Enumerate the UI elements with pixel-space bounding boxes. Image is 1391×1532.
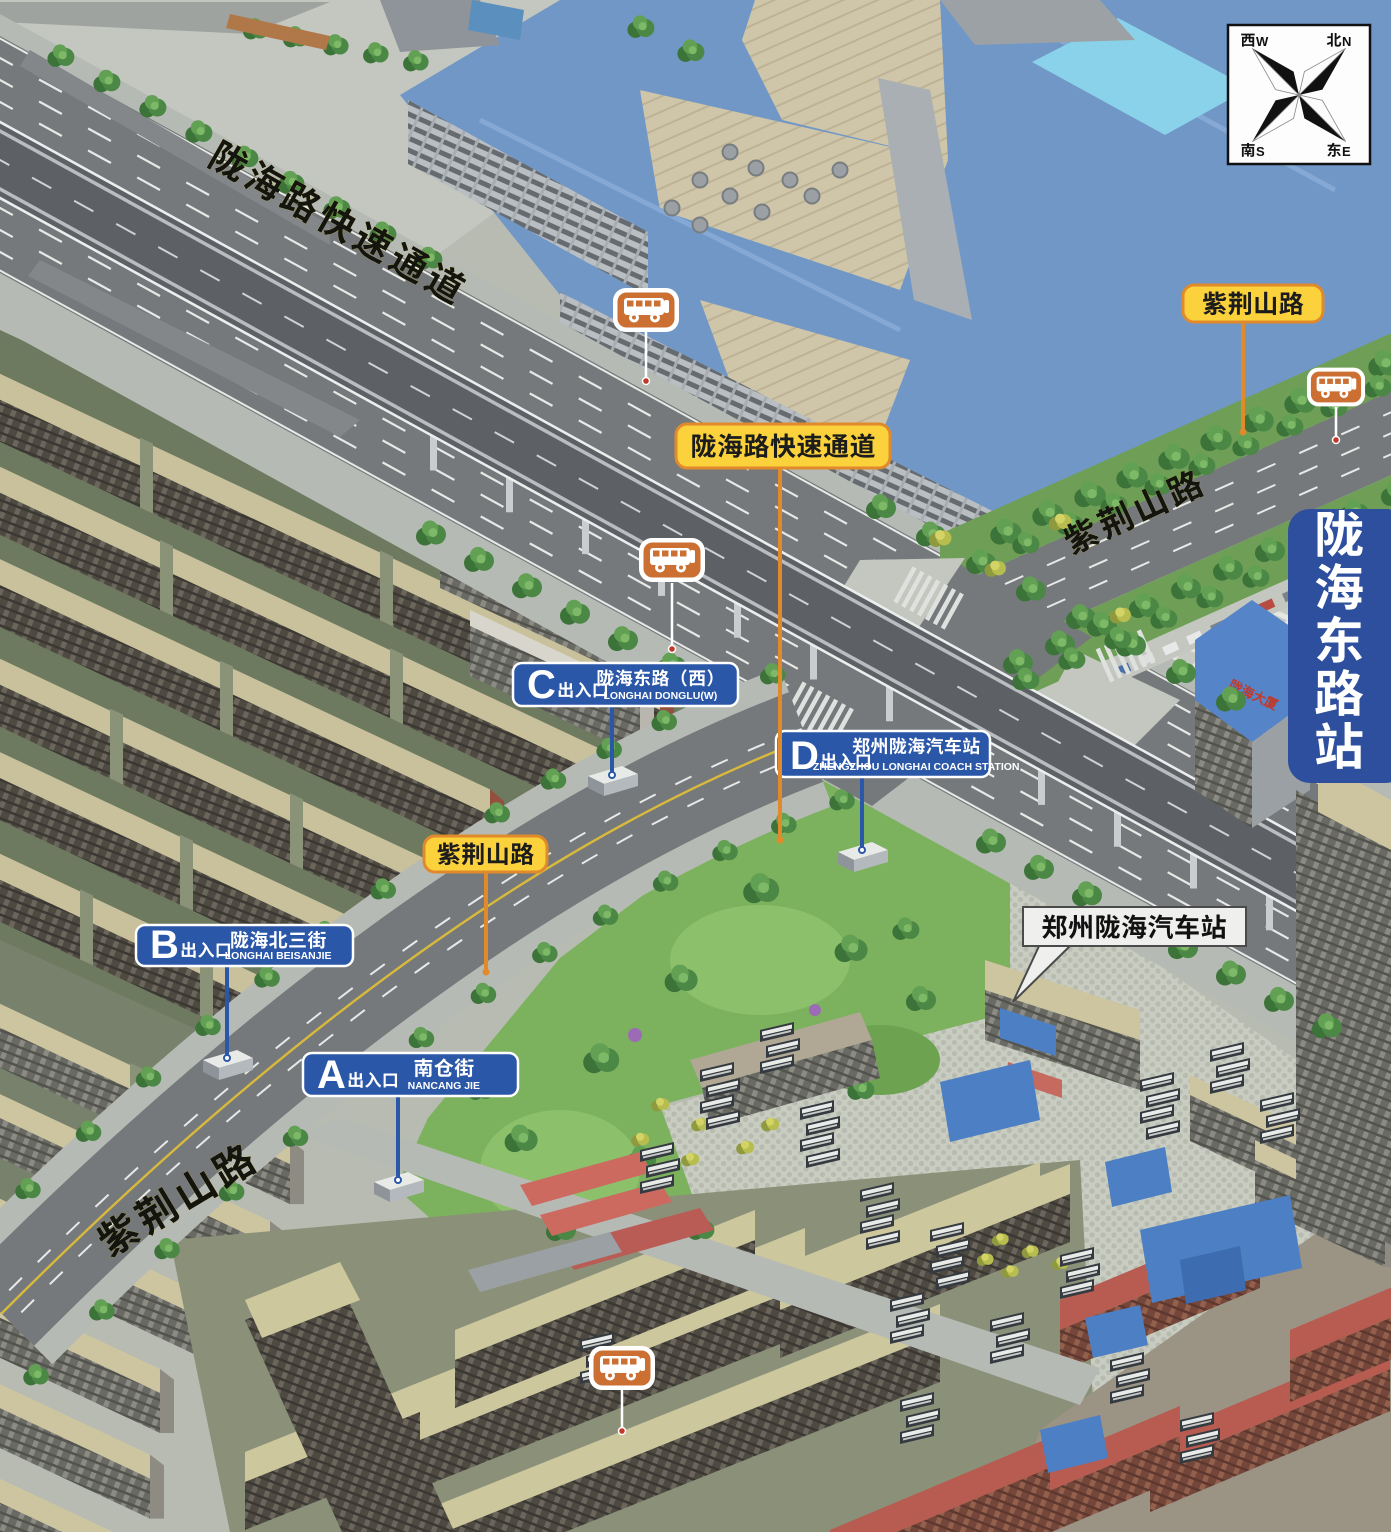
svg-text:E: E [1342,144,1351,159]
svg-text:N: N [1342,34,1351,49]
svg-text:W: W [1256,34,1269,49]
svg-text:LONGHAI DONGLU(W): LONGHAI DONGLU(W) [604,690,718,702]
svg-text:C: C [527,663,556,707]
svg-text:ZHENGZHOU LONGHAI COACH STATIO: ZHENGZHOU LONGHAI COACH STATION [813,761,1020,773]
svg-text:S: S [1256,144,1265,159]
svg-text:LONGHAI BEISANJIE: LONGHAI BEISANJIE [225,950,332,962]
svg-text:NANCANG JIE: NANCANG JIE [408,1080,480,1092]
svg-text:A: A [317,1053,346,1097]
svg-text:B: B [150,923,179,967]
